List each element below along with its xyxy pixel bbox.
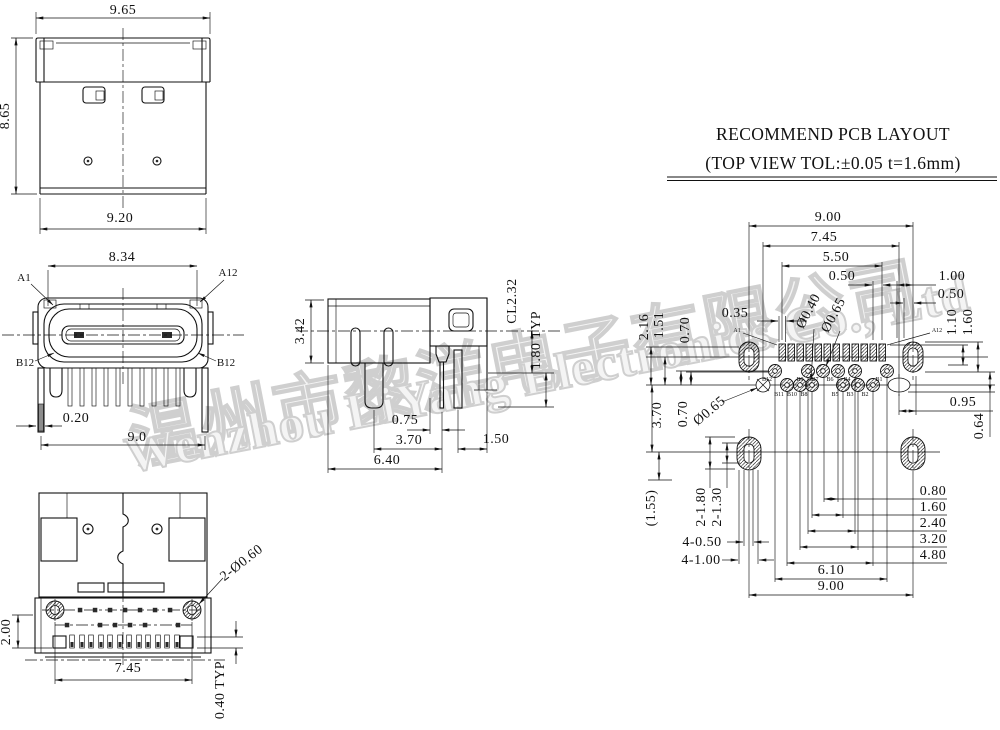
dim-tail-gap: 1.50 bbox=[483, 432, 510, 447]
dim-lead-thickness: 0.20 bbox=[63, 411, 90, 426]
dim-flange-height: 2.00 bbox=[0, 619, 14, 646]
pad-label-a12: A12 bbox=[932, 328, 942, 334]
dim-pcb-070: 0.70 bbox=[678, 317, 693, 344]
hole-label: B7 bbox=[811, 377, 818, 383]
latch-hole bbox=[449, 309, 473, 331]
dim-hole-callout: 2-Ø0.60 bbox=[218, 542, 266, 584]
pcb-title-line2: (TOP VIEW TOL:±0.05 t=1.6mm) bbox=[705, 153, 960, 173]
drawing-page: { "colors": {"line": "#111111", "waterma… bbox=[0, 0, 1000, 730]
dim-pcb-pad-width: 0.35 bbox=[722, 306, 749, 321]
dim-tongue-width: 8.34 bbox=[109, 250, 136, 265]
hole-label: B8 bbox=[800, 392, 807, 398]
dim-pcb-550: 5.50 bbox=[823, 250, 850, 265]
side-view: 3.42 CL2.32 1.80 TYP 0.75 3.70 1.50 6.40 bbox=[293, 278, 560, 473]
dim-pcb-slot-height: 4-1.00 bbox=[681, 553, 720, 568]
dim-pcb-slot-130: 2-1.30 bbox=[710, 487, 725, 526]
dim-overall-depth: 6.40 bbox=[374, 453, 401, 468]
pcb-layout: B12 B9 B7 B6 B4 B1 B11 B10 B8 B5 B3 B2 A… bbox=[637, 210, 995, 598]
hole-label: B10 bbox=[787, 392, 797, 398]
dim-side-height: 3.42 bbox=[293, 318, 308, 345]
dim-pad-typ: 0.40 TYP bbox=[213, 661, 228, 719]
dim-pcb-320: 3.20 bbox=[920, 532, 947, 547]
hole-label: B5 bbox=[831, 392, 838, 398]
dim-pcb-160b: 1.60 bbox=[920, 500, 947, 515]
dim-pcb-610: 6.10 bbox=[818, 563, 845, 578]
dim-pcb-370: 3.70 bbox=[650, 402, 665, 429]
dim-pcb-hole-dia: Ø0.65 bbox=[819, 295, 850, 335]
dim-top-height: 8.65 bbox=[0, 103, 13, 130]
dim-pcb-216: 2.16 bbox=[637, 314, 652, 341]
bottom-view: 2.00 7.45 0.40 TYP 2-Ø0.60 bbox=[0, 493, 266, 719]
dim-pcb-160: 1.60 bbox=[961, 309, 976, 336]
dim-pcb-095: 0.95 bbox=[950, 395, 977, 410]
pcb-layout-title: RECOMMEND PCB LAYOUT (TOP VIEW TOL:±0.05… bbox=[667, 124, 997, 181]
dim-pcb-hole-dia-b: Ø0.65 bbox=[691, 394, 729, 429]
dim-pcb-480: 4.80 bbox=[920, 548, 947, 563]
hole-label: B2 bbox=[861, 392, 868, 398]
connector-drawing: 9.65 8.65 9.20 8.34 A1 A12 B12 B12 bbox=[0, 0, 1000, 730]
dim-centerline-offset: CL2.32 bbox=[505, 278, 520, 323]
dim-pcb-900-bottom: 9.00 bbox=[818, 579, 845, 594]
dim-top-body-width: 9.20 bbox=[107, 211, 134, 226]
side-tab bbox=[208, 312, 213, 344]
dim-pcb-155: (1.55) bbox=[644, 490, 659, 527]
dim-pcb-slot-width: 4-0.50 bbox=[682, 535, 721, 550]
pcb-title-line1: RECOMMEND PCB LAYOUT bbox=[716, 124, 950, 144]
dim-pcb-110: 1.10 bbox=[945, 309, 960, 336]
hole-label: B11 bbox=[774, 392, 784, 398]
dim-pcb-240: 2.40 bbox=[920, 516, 947, 531]
dim-lead-pitch: 1.80 TYP bbox=[529, 311, 544, 369]
dim-body-width: 9.0 bbox=[128, 430, 147, 445]
hole-label: B12 bbox=[762, 377, 772, 383]
mount-leg bbox=[202, 368, 208, 432]
pad-label-a1: A1 bbox=[733, 328, 740, 334]
front-view: 8.34 A1 A12 B12 B12 0.20 9.0 bbox=[2, 250, 244, 450]
hole-label: B6 bbox=[826, 377, 833, 383]
dim-pcb-080: 0.80 bbox=[920, 484, 947, 499]
dim-pcb-745: 7.45 bbox=[811, 230, 838, 245]
smt-pad-row bbox=[779, 344, 886, 361]
dim-pcb-900-top: 9.00 bbox=[815, 210, 842, 225]
latch-window bbox=[142, 87, 164, 103]
dim-pcb-100: 1.00 bbox=[939, 269, 966, 284]
dim-pcb-064: 0.64 bbox=[972, 413, 987, 440]
dim-pcb-050-right: 0.50 bbox=[938, 287, 965, 302]
dim-screw-span: 7.45 bbox=[115, 661, 142, 676]
dim-pcb-151: 1.51 bbox=[652, 312, 667, 339]
dim-pcb-slot-180: 2-1.80 bbox=[694, 487, 709, 526]
dim-pin-offset: 0.75 bbox=[392, 413, 419, 428]
dim-mid-span: 3.70 bbox=[396, 433, 423, 448]
side-tab bbox=[33, 312, 38, 344]
hole-label: B4 bbox=[843, 377, 850, 383]
pin-label-a12: A12 bbox=[219, 267, 238, 279]
hole-label: B3 bbox=[846, 392, 853, 398]
pin-label-a1: A1 bbox=[17, 272, 30, 284]
dim-pcb-pitch: 0.50 bbox=[829, 269, 856, 284]
pin-label-b12-left: B12 bbox=[16, 357, 34, 369]
top-view: 9.65 8.65 9.20 bbox=[0, 3, 210, 234]
hole-label: B9 bbox=[796, 377, 803, 383]
hole-label: B1 bbox=[875, 377, 882, 383]
dim-pcb-070b: 0.70 bbox=[676, 401, 691, 428]
latch-window bbox=[83, 87, 105, 103]
pin-label-b12-right: B12 bbox=[217, 357, 235, 369]
dim-top-width: 9.65 bbox=[110, 3, 137, 18]
